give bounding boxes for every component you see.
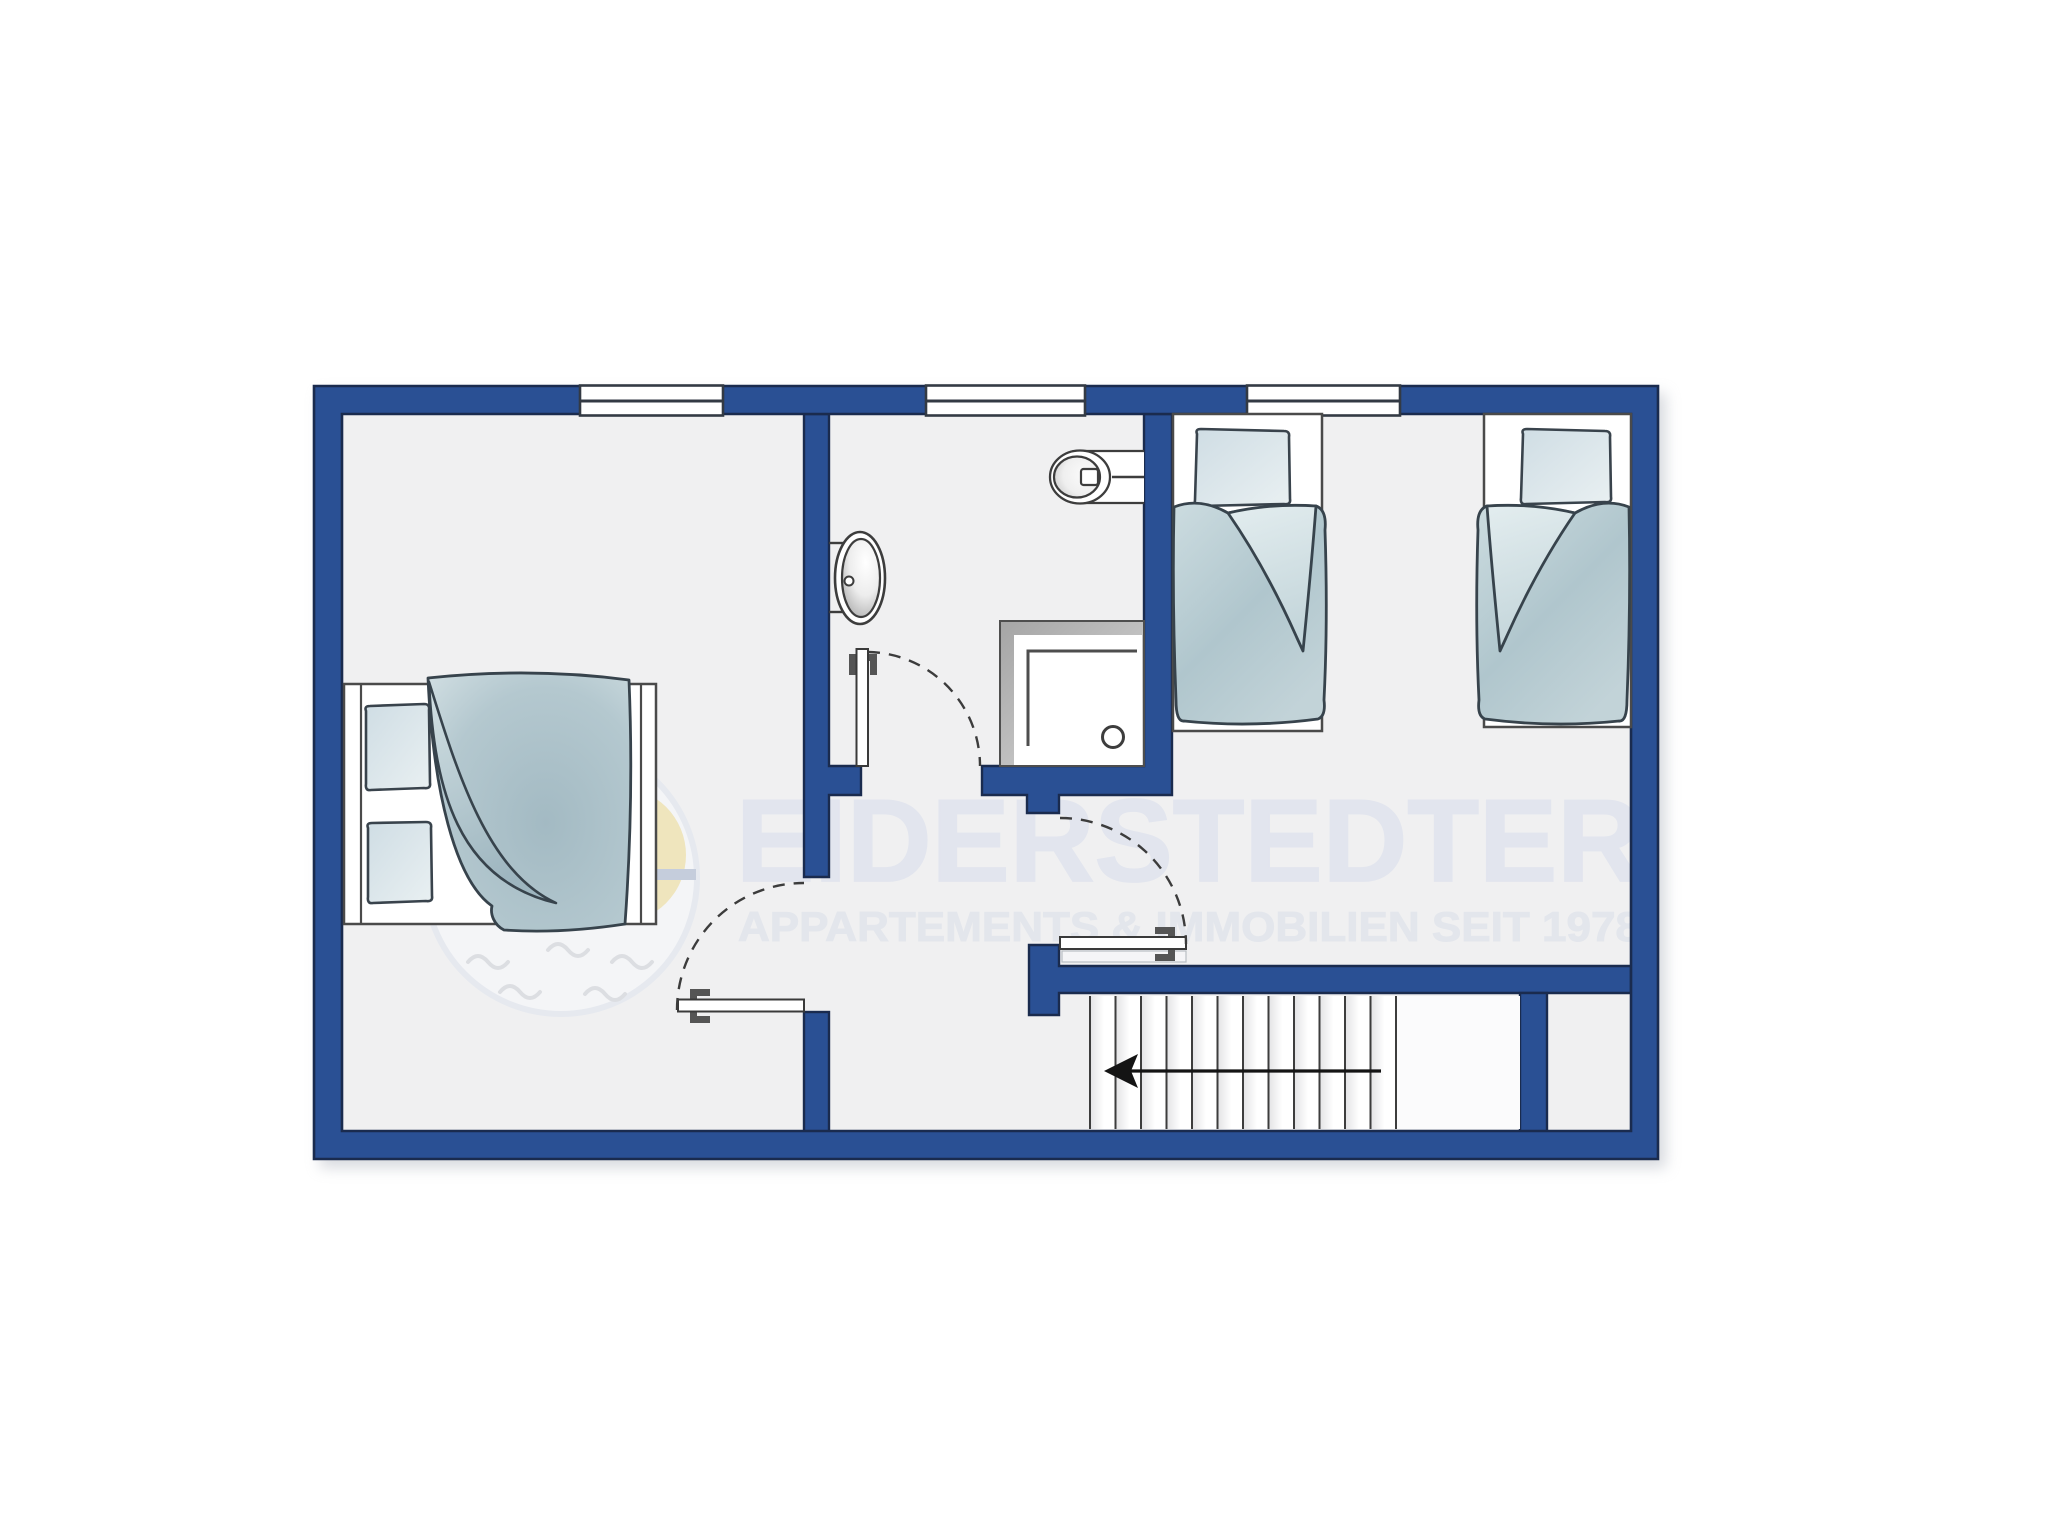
svg-text:APPARTEMENTS & IMMOBILIEN SEIT: APPARTEMENTS & IMMOBILIEN SEIT 1978 xyxy=(738,903,1640,950)
svg-text:EIDERSTEDTER: EIDERSTEDTER xyxy=(736,775,1642,906)
